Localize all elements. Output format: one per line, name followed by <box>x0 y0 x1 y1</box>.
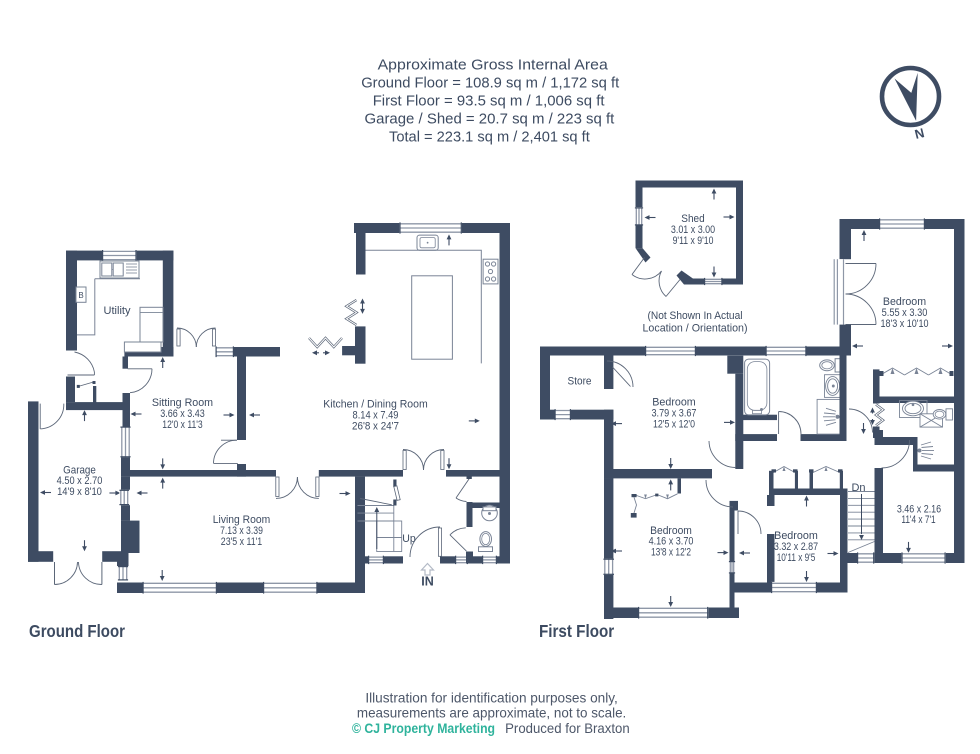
svg-text:IN: IN <box>421 575 434 589</box>
svg-text:Dn: Dn <box>851 482 865 494</box>
svg-text:26'8 x 24'7: 26'8 x 24'7 <box>352 420 399 432</box>
svg-text:Location / Orientation): Location / Orientation) <box>643 323 748 335</box>
svg-text:23'5 x 11'1: 23'5 x 11'1 <box>221 536 262 548</box>
svg-text:12'0 x 11'3: 12'0 x 11'3 <box>162 419 202 431</box>
svg-text:B: B <box>78 291 83 300</box>
svg-text:First Floor: First Floor <box>539 621 614 641</box>
svg-text:Garage / Shed = 20.7 sq m / 22: Garage / Shed = 20.7 sq m / 223 sq ft <box>365 111 616 128</box>
svg-text:Illustration for identificatio: Illustration for identification purposes… <box>365 690 618 706</box>
svg-text:(Not Shown In Actual: (Not Shown In Actual <box>648 310 743 322</box>
svg-text:measurements are approximate,: measurements are approximate, not to sca… <box>357 705 626 721</box>
svg-text:12'5 x 12'0: 12'5 x 12'0 <box>653 418 695 430</box>
svg-text:11'4 x 7'1: 11'4 x 7'1 <box>901 514 935 526</box>
svg-text:Utility: Utility <box>104 305 131 317</box>
svg-text:9'11 x 9'10: 9'11 x 9'10 <box>673 235 714 247</box>
svg-text:Produced for Braxton: Produced for Braxton <box>505 720 630 736</box>
svg-text:Ground Floor = 108.9 sq m / 1,: Ground Floor = 108.9 sq m / 1,172 sq ft <box>361 75 620 92</box>
svg-text:14'9 x 8'10: 14'9 x 8'10 <box>57 486 102 498</box>
svg-text:First Floor = 93.5 sq m / 1,00: First Floor = 93.5 sq m / 1,006 sq ft <box>373 93 606 110</box>
svg-text:10'11 x 9'5: 10'11 x 9'5 <box>777 552 816 564</box>
svg-text:Total = 223.1 sq m / 2,401 sq: Total = 223.1 sq m / 2,401 sq ft <box>389 129 591 146</box>
svg-text:© CJ Property Marketing: © CJ Property Marketing <box>352 720 495 736</box>
svg-text:Store: Store <box>568 376 592 388</box>
svg-text:18'3 x 10'10: 18'3 x 10'10 <box>880 318 928 330</box>
svg-text:13'8 x 12'2: 13'8 x 12'2 <box>651 547 691 559</box>
svg-text:Approximate Gross Internal Are: Approximate Gross Internal Area <box>378 56 609 73</box>
svg-text:Ground Floor: Ground Floor <box>29 621 125 641</box>
